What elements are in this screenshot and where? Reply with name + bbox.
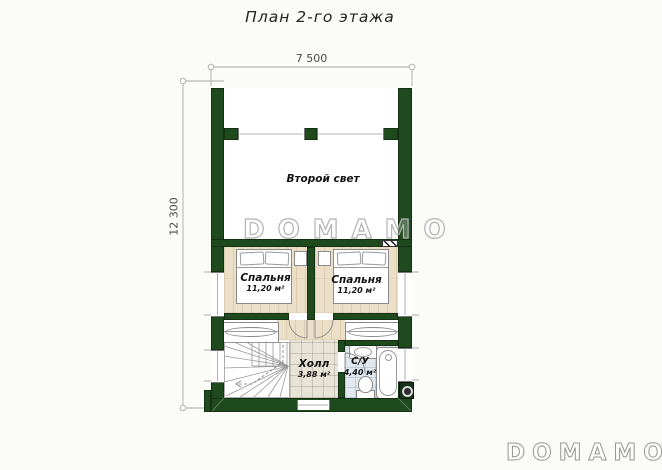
- page-title: План 2-го этажа: [120, 8, 520, 26]
- window-left-stairs: [211, 350, 224, 383]
- wall-corner-step: [204, 390, 211, 412]
- room-name: Спальня: [315, 274, 398, 286]
- wall-bath-divider-top: [338, 340, 345, 352]
- pillow-icon: [265, 251, 290, 265]
- dimension-width-label: 7 500: [211, 52, 412, 65]
- pillow-icon: [337, 251, 362, 265]
- room-label-hall: Холл 3,88 м²: [288, 358, 340, 379]
- dimension-height-label: 12 300: [168, 185, 181, 249]
- wardrobe-rod-icon: [225, 327, 276, 337]
- window-left-bedroom: [211, 272, 224, 317]
- room-name: Спальня: [224, 272, 307, 284]
- room-name: Холл: [288, 358, 340, 370]
- pillow-icon: [240, 251, 265, 265]
- wall-front-pier-left: [224, 128, 238, 140]
- wall-between-bedrooms: [307, 247, 315, 320]
- blanket-line: [334, 267, 388, 268]
- pillow-icon: [362, 251, 387, 265]
- window-front-right: [317, 128, 384, 140]
- wardrobe-line: [223, 331, 278, 332]
- watermark: DOMAMO: [243, 215, 459, 245]
- room-name: С/У: [338, 357, 382, 368]
- window-right-bathroom: [398, 348, 412, 382]
- nightstand-left: [294, 251, 307, 266]
- window-bottom: [297, 400, 330, 410]
- room-label-bedroom-left: Спальня 11,20 м²: [224, 272, 307, 293]
- wall-front-pier-right: [382, 128, 398, 140]
- room-area: 11,20 м²: [224, 284, 307, 293]
- room-area: 3,88 м²: [288, 370, 340, 379]
- brand-logo: DOMAMO: [506, 440, 662, 466]
- floor-plan-page: План 2-го этажа 7 500 12 300: [0, 0, 662, 470]
- lobby-floor: [277, 320, 345, 340]
- wall-right-mid: [398, 315, 412, 348]
- toilet-icon: [358, 376, 373, 393]
- wall-left-mid: [211, 315, 224, 350]
- room-label-second-light: Второй свет: [253, 173, 393, 185]
- wardrobe-rod-icon: [348, 327, 397, 337]
- wardrobe-line: [346, 331, 399, 332]
- boiler-icon: [399, 382, 414, 399]
- wall-bathroom-top: [345, 340, 398, 346]
- boiler-dial: [402, 386, 413, 397]
- wardrobe-left: [222, 322, 279, 343]
- window-front-left: [238, 128, 305, 140]
- window-right-bedroom: [398, 272, 412, 317]
- wall-bedroom-left-bottom: [224, 313, 289, 320]
- nightstand-right: [318, 251, 331, 266]
- blanket-line: [237, 267, 291, 268]
- bathtub-drain: [385, 354, 392, 361]
- stairwell-area: [224, 340, 290, 398]
- room-area: 4,40 м²: [338, 368, 382, 377]
- wall-front-pier-center: [303, 128, 317, 140]
- room-name: Второй свет: [253, 173, 393, 185]
- room-label-bedroom-right: Спальня 11,20 м²: [315, 274, 398, 295]
- wall-bedroom-right-bottom: [333, 313, 398, 320]
- room-label-bathroom: С/У 4,40 м²: [338, 357, 382, 377]
- room-area: 11,20 м²: [315, 286, 398, 295]
